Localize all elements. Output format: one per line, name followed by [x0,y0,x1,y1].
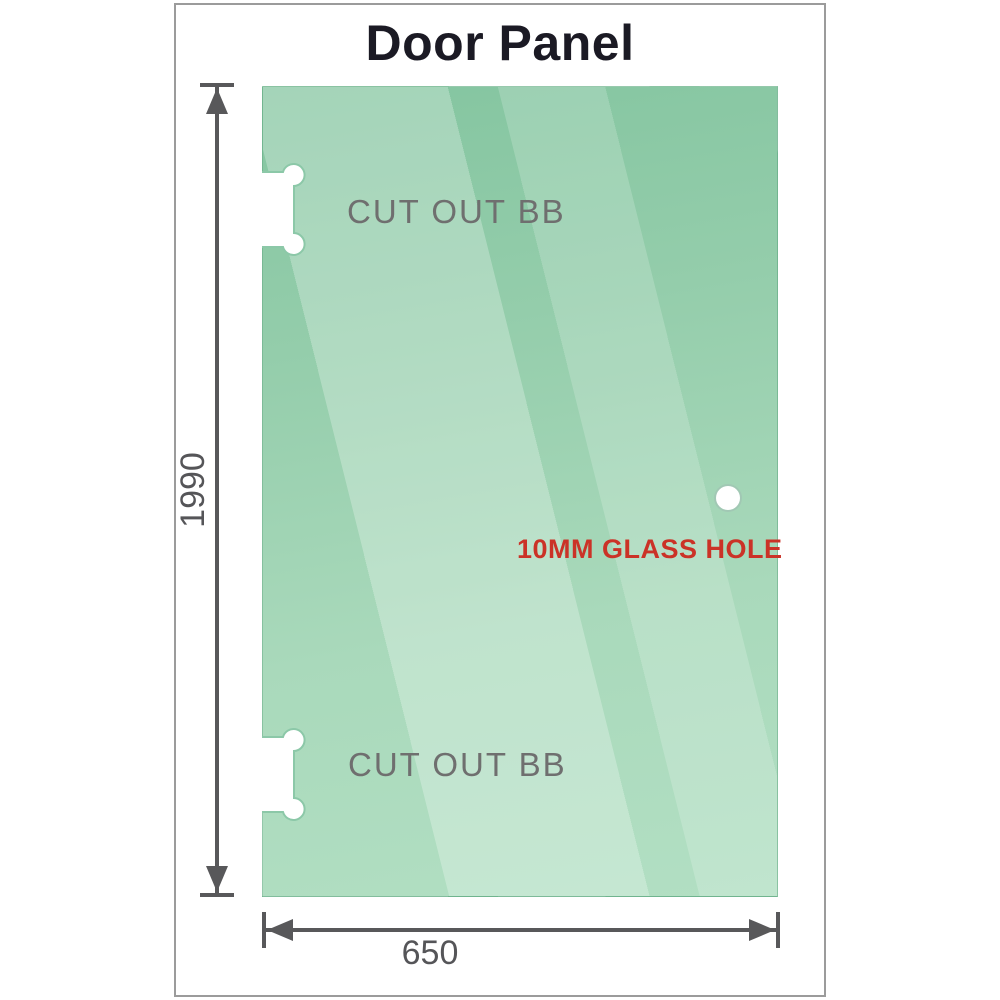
cutout-fill-top [261,164,305,255]
height-dimension-line [215,86,219,894]
hinge-cutout-shape-top [261,163,307,256]
width-dimension-arrow-right-icon [749,919,775,941]
width-dimension-value: 650 [385,936,475,970]
page-title: Door Panel [174,14,826,72]
height-dimension-value: 1990 [176,450,210,530]
glass-hole [714,484,742,512]
height-dimension-arrow-up-icon [206,88,228,114]
height-dimension-arrow-down-icon [206,866,228,892]
width-dimension-arrow-left-icon [267,919,293,941]
height-dimension-cap-bottom [200,893,234,897]
glass-hole-label: 10MM GLASS HOLE [517,534,783,565]
door-panel-diagram: Door Panel CUT OUT BB CUT OUT BB 10MM GL… [0,0,1000,1000]
cutout-label-top: CUT OUT BB [347,195,566,229]
width-dimension-cap-right [776,912,780,948]
cutout-label-bottom: CUT OUT BB [348,748,567,782]
width-dimension-line [266,928,776,932]
cutout-fill-bottom [261,729,305,820]
hinge-cutout-shape-bottom [261,728,307,821]
